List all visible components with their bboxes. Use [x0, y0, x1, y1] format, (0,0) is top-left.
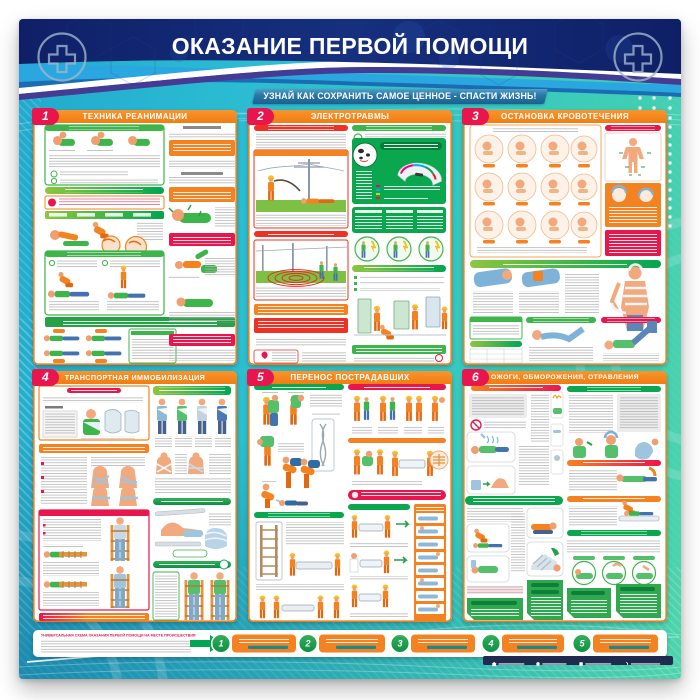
svg-text:1: 1: [218, 639, 223, 649]
svg-text:2: 2: [304, 639, 310, 649]
svg-text:4: 4: [487, 639, 493, 649]
svg-text:3: 3: [397, 639, 402, 649]
svg-text:УНИВЕРСАЛЬНАЯ СХЕМА ОКАЗАНИЯ П: УНИВЕРСАЛЬНАЯ СХЕМА ОКАЗАНИЯ ПЕРВОЙ ПОМО…: [41, 634, 196, 638]
